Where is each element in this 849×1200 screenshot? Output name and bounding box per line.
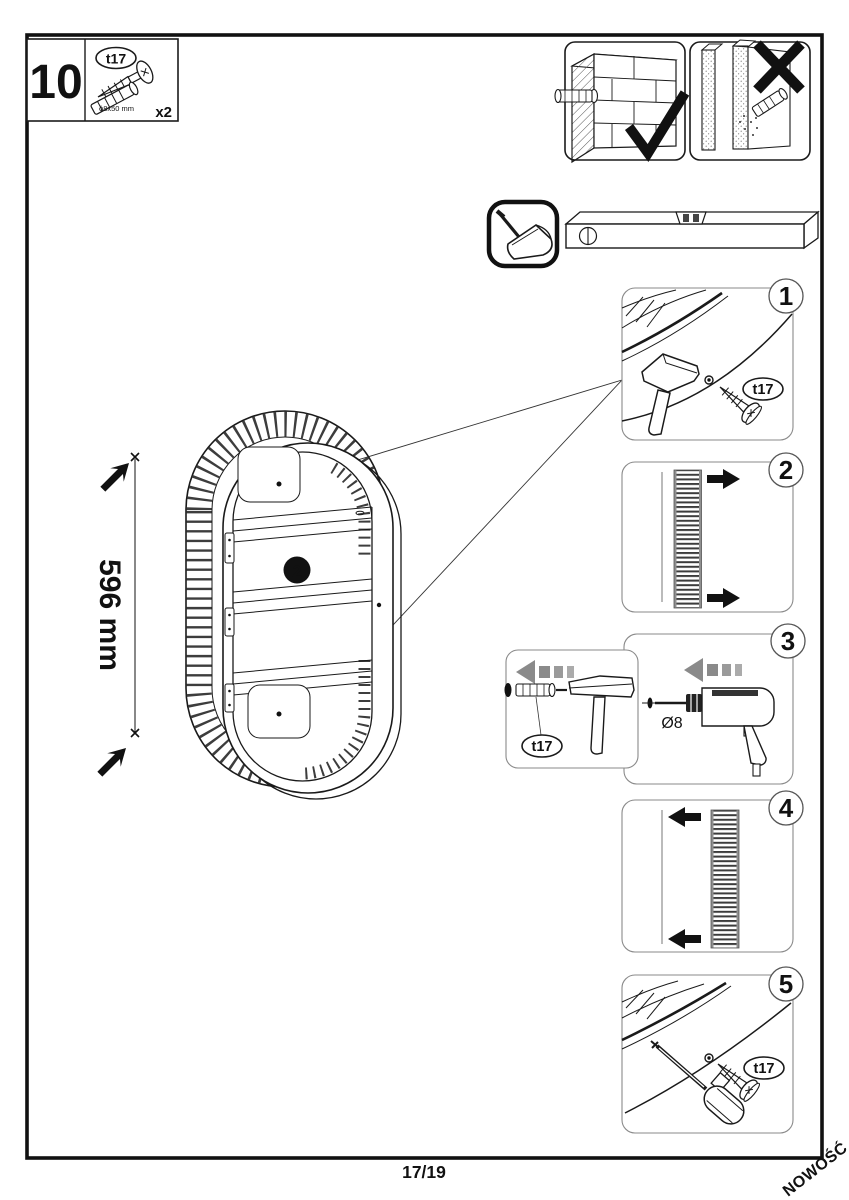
drywall-slab	[702, 50, 715, 150]
part-marker: 2	[292, 562, 301, 581]
slat-strip	[711, 810, 739, 948]
arrow-up-right-icon	[93, 741, 133, 781]
spirit-level-icon	[566, 212, 818, 248]
drywall-slab	[733, 46, 748, 149]
brick-wall-ok-panel	[555, 42, 685, 162]
step-number: 10	[29, 56, 82, 109]
mounting-hole-top	[277, 482, 282, 487]
hinge-plates	[225, 533, 234, 712]
cabinet-illustration: 2	[186, 411, 401, 799]
wall-cut-face	[572, 54, 594, 162]
part-code: t17	[106, 51, 126, 67]
manual-page: 10 t17 ϕ8x50 mm x2	[0, 0, 849, 1200]
callout-panel-4: 4	[622, 791, 803, 952]
wall-plug-icon	[555, 90, 592, 103]
mounting-hole-bottom	[277, 712, 282, 717]
step-circle-number: 3	[781, 626, 795, 656]
callout-panel-2: 2	[622, 453, 803, 612]
callout-panel-3: Ø8 3 t17	[505, 624, 806, 784]
page-number: 17/19	[402, 1162, 446, 1182]
part-code: t17	[753, 382, 774, 398]
dimension-label: 596 mm	[93, 559, 126, 671]
callout-3-subpanel: t17	[505, 650, 639, 768]
new-watermark: NOWOŚĆ	[779, 1138, 849, 1200]
part-code: t17	[754, 1061, 775, 1077]
callout-panel-5: t17 5	[622, 967, 803, 1133]
drill-diameter: Ø8	[661, 715, 682, 732]
step-circle-number: 2	[779, 455, 793, 485]
wall-hole	[505, 683, 512, 697]
part-code: t17	[532, 739, 553, 755]
step-circle-number: 5	[779, 969, 793, 999]
drywall-bad-panel	[690, 40, 810, 160]
slat-strip	[674, 470, 702, 608]
arrow-up-right-icon	[96, 456, 136, 496]
part-size: ϕ8x50 mm	[99, 104, 134, 113]
step-hardware-box: 10 t17 ϕ8x50 mm x2	[27, 39, 178, 121]
step-circle-number: 4	[779, 793, 794, 823]
tools-row	[489, 202, 818, 266]
quantity: x2	[155, 104, 172, 121]
mounting-panel-top	[238, 447, 300, 502]
dimension-annotation: 596 mm	[93, 453, 139, 781]
step-circle-number: 1	[779, 281, 793, 311]
callout-panel-1: t17 1	[622, 279, 803, 440]
